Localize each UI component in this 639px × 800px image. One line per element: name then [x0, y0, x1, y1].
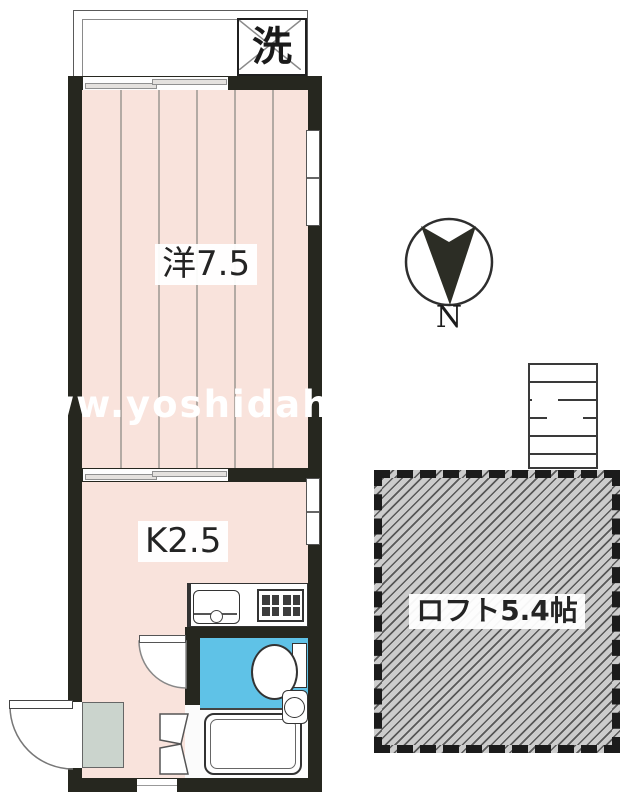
- compass-needle-icon: [421, 226, 476, 305]
- stove-burner-icon: [262, 595, 279, 616]
- floor-board-line: [272, 90, 274, 468]
- folding-door-icon: [157, 710, 191, 778]
- sliding-panel: [85, 83, 157, 89]
- partition-sliding-door: [83, 469, 228, 481]
- watermark-fragment: [547, 411, 583, 420]
- stair-tread: [530, 381, 596, 383]
- stair-tread: [530, 435, 596, 437]
- washing-machine-box: 洗: [237, 18, 307, 76]
- sliding-panel: [152, 471, 227, 477]
- gas-stove: [257, 589, 304, 622]
- window-divider: [307, 511, 319, 513]
- window-divider: [307, 177, 319, 179]
- faucet-icon: [210, 610, 223, 623]
- balcony-sliding-window: [83, 77, 228, 90]
- watermark-fragment: [532, 397, 558, 406]
- sliding-panel: [152, 79, 227, 85]
- entrance-mat: [82, 702, 124, 768]
- entrance-door-arc: [2, 698, 82, 776]
- kitchen-label: K2.5: [138, 521, 228, 562]
- bathroom-top-wall: [185, 627, 308, 638]
- stair-tread: [530, 453, 596, 455]
- window-right-kitchen: [306, 478, 320, 545]
- western-room-label: 洋7.5: [155, 244, 257, 285]
- compass-north-label: N: [436, 300, 462, 331]
- interior-door-leaf: [139, 635, 186, 643]
- loft-area: ロフト5.4帖: [374, 470, 620, 753]
- washing-machine-label: 洗: [252, 27, 292, 67]
- entrance-door-leaf: [9, 700, 73, 709]
- sliding-panel: [85, 474, 157, 480]
- bottom-wall-vent: [137, 779, 177, 792]
- compass: N: [394, 213, 506, 331]
- window-right-room: [306, 130, 320, 226]
- loft-label: ロフト5.4帖: [409, 594, 585, 628]
- stove-burner-icon: [283, 595, 300, 616]
- floor-board-line: [120, 90, 122, 468]
- floorplan-canvas: 洗 洋7.5 K2.5: [0, 0, 639, 800]
- washbasin-bowl-icon: [284, 697, 305, 718]
